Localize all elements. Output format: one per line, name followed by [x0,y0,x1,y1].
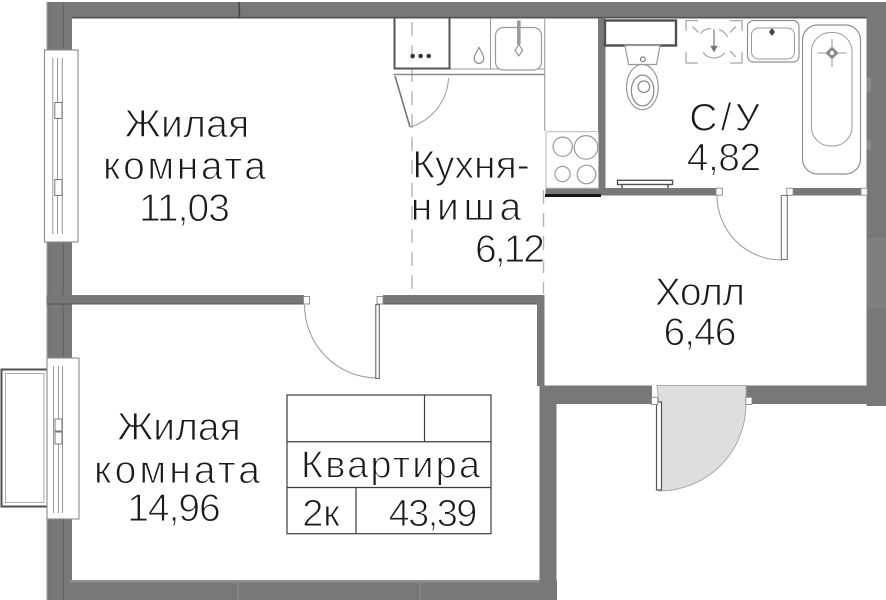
svg-text:6,12: 6,12 [475,228,545,271]
svg-text:Холл: Холл [655,271,745,314]
svg-text:14,96: 14,96 [127,487,221,530]
svg-text:Жилая: Жилая [117,406,241,449]
svg-text:6,46: 6,46 [664,311,737,354]
svg-text:2к: 2к [302,493,340,535]
svg-text:Жилая: Жилая [125,103,250,146]
svg-text:ниша: ниша [411,186,522,229]
svg-text:Кухня-: Кухня- [412,144,530,187]
svg-text:4,82: 4,82 [687,137,761,180]
svg-text:С/У: С/У [689,97,760,140]
svg-text:43,39: 43,39 [389,493,478,535]
svg-text:11,03: 11,03 [139,187,230,230]
